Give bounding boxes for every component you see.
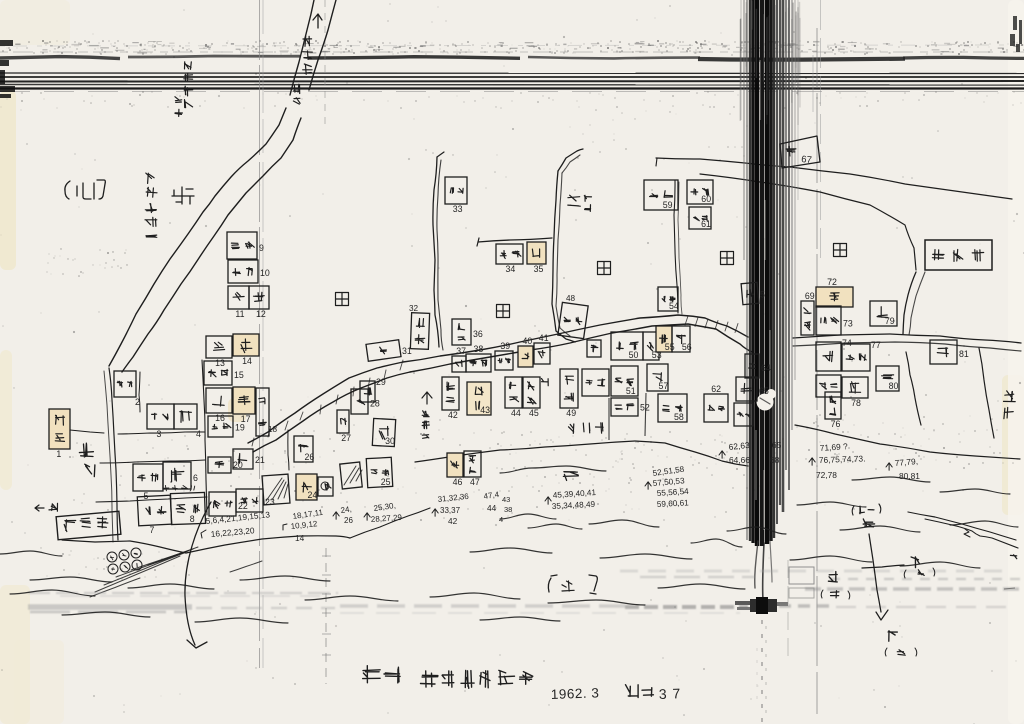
svg-text:68: 68	[770, 455, 780, 465]
svg-text:14: 14	[242, 356, 252, 366]
svg-text:69: 69	[805, 291, 815, 301]
svg-text:39: 39	[500, 341, 510, 351]
svg-text:15: 15	[234, 370, 244, 380]
svg-text:27: 27	[341, 433, 351, 443]
svg-text:71,69 ?: 71,69 ?	[819, 441, 848, 453]
svg-text:14: 14	[295, 533, 305, 543]
svg-text:44: 44	[511, 408, 521, 418]
svg-text:51: 51	[626, 386, 636, 396]
svg-text:54: 54	[669, 301, 679, 311]
svg-text:58: 58	[674, 412, 684, 422]
svg-text:43: 43	[480, 405, 490, 415]
svg-text:34: 34	[505, 264, 515, 274]
svg-text:81: 81	[959, 349, 969, 359]
svg-text:18: 18	[268, 425, 278, 434]
svg-text:78: 78	[851, 398, 861, 408]
svg-text:42: 42	[448, 516, 458, 526]
svg-text:44: 44	[487, 503, 497, 513]
svg-text:16: 16	[215, 413, 225, 423]
svg-text:26: 26	[304, 452, 314, 462]
svg-text:33,37: 33,37	[440, 506, 461, 515]
svg-text:55: 55	[665, 342, 675, 352]
svg-text:56: 56	[682, 342, 692, 352]
svg-text:41: 41	[539, 333, 549, 343]
svg-text:73: 73	[843, 318, 853, 328]
svg-text:5: 5	[760, 290, 765, 300]
svg-text:74: 74	[842, 338, 852, 348]
svg-text:38: 38	[474, 344, 484, 354]
svg-text:43: 43	[502, 495, 510, 504]
svg-text:1: 1	[56, 449, 61, 459]
svg-text:64: 64	[761, 363, 771, 373]
svg-text:61: 61	[701, 219, 711, 229]
svg-text:59,60,61: 59,60,61	[657, 498, 690, 509]
svg-text:11: 11	[235, 309, 244, 319]
svg-text:52: 52	[640, 403, 650, 413]
svg-text:45: 45	[529, 408, 539, 418]
svg-text:9: 9	[259, 243, 264, 253]
svg-text:76: 76	[831, 419, 841, 429]
svg-text:2: 2	[135, 397, 140, 407]
svg-text:25: 25	[381, 477, 391, 487]
svg-text:36: 36	[473, 329, 483, 339]
svg-text:60: 60	[701, 194, 711, 204]
svg-text:46: 46	[453, 477, 463, 487]
svg-text:12: 12	[256, 309, 266, 319]
svg-text:24: 24	[308, 490, 318, 500]
svg-text:49: 49	[566, 408, 576, 418]
svg-text:62: 62	[711, 384, 721, 394]
svg-text:65: 65	[759, 386, 769, 396]
svg-text:19: 19	[235, 423, 245, 433]
svg-text:26: 26	[344, 516, 353, 525]
svg-text:50: 50	[629, 350, 639, 360]
svg-text:59: 59	[663, 200, 673, 210]
svg-text:24,: 24,	[340, 505, 352, 515]
svg-text:67: 67	[801, 154, 813, 166]
svg-text:3: 3	[156, 429, 161, 439]
svg-text:6: 6	[193, 473, 198, 483]
svg-text:76,75,74,73.: 76,75,74,73.	[819, 453, 866, 465]
svg-text:42: 42	[448, 410, 458, 420]
svg-text:13: 13	[215, 358, 225, 368]
svg-text:8: 8	[190, 514, 195, 524]
svg-text:64,66: 64,66	[729, 455, 750, 465]
svg-text:47: 47	[470, 477, 480, 487]
svg-text:30: 30	[385, 436, 395, 446]
svg-text:21: 21	[255, 455, 265, 465]
svg-text:10: 10	[260, 268, 270, 278]
svg-text:1962. 3: 1962. 3	[551, 685, 600, 702]
svg-text:35: 35	[534, 264, 544, 274]
svg-text:80: 80	[889, 381, 899, 391]
svg-text:77,79,: 77,79,	[894, 456, 918, 468]
svg-text:79: 79	[885, 316, 895, 326]
svg-text:48: 48	[566, 294, 576, 303]
svg-text:77: 77	[871, 340, 881, 350]
svg-text:72,78: 72,78	[816, 470, 837, 480]
svg-text:37: 37	[456, 346, 466, 356]
svg-text:3 7: 3 7	[659, 685, 682, 702]
svg-text:4: 4	[196, 429, 201, 439]
svg-text:33: 33	[453, 204, 463, 214]
svg-text:57: 57	[659, 381, 669, 391]
svg-text:38: 38	[504, 505, 512, 514]
svg-text:40: 40	[523, 336, 533, 346]
svg-text:65: 65	[772, 440, 782, 450]
svg-text:72: 72	[827, 277, 837, 287]
svg-text:32: 32	[409, 304, 419, 313]
svg-text:7: 7	[150, 525, 155, 535]
svg-text:29: 29	[376, 377, 386, 387]
